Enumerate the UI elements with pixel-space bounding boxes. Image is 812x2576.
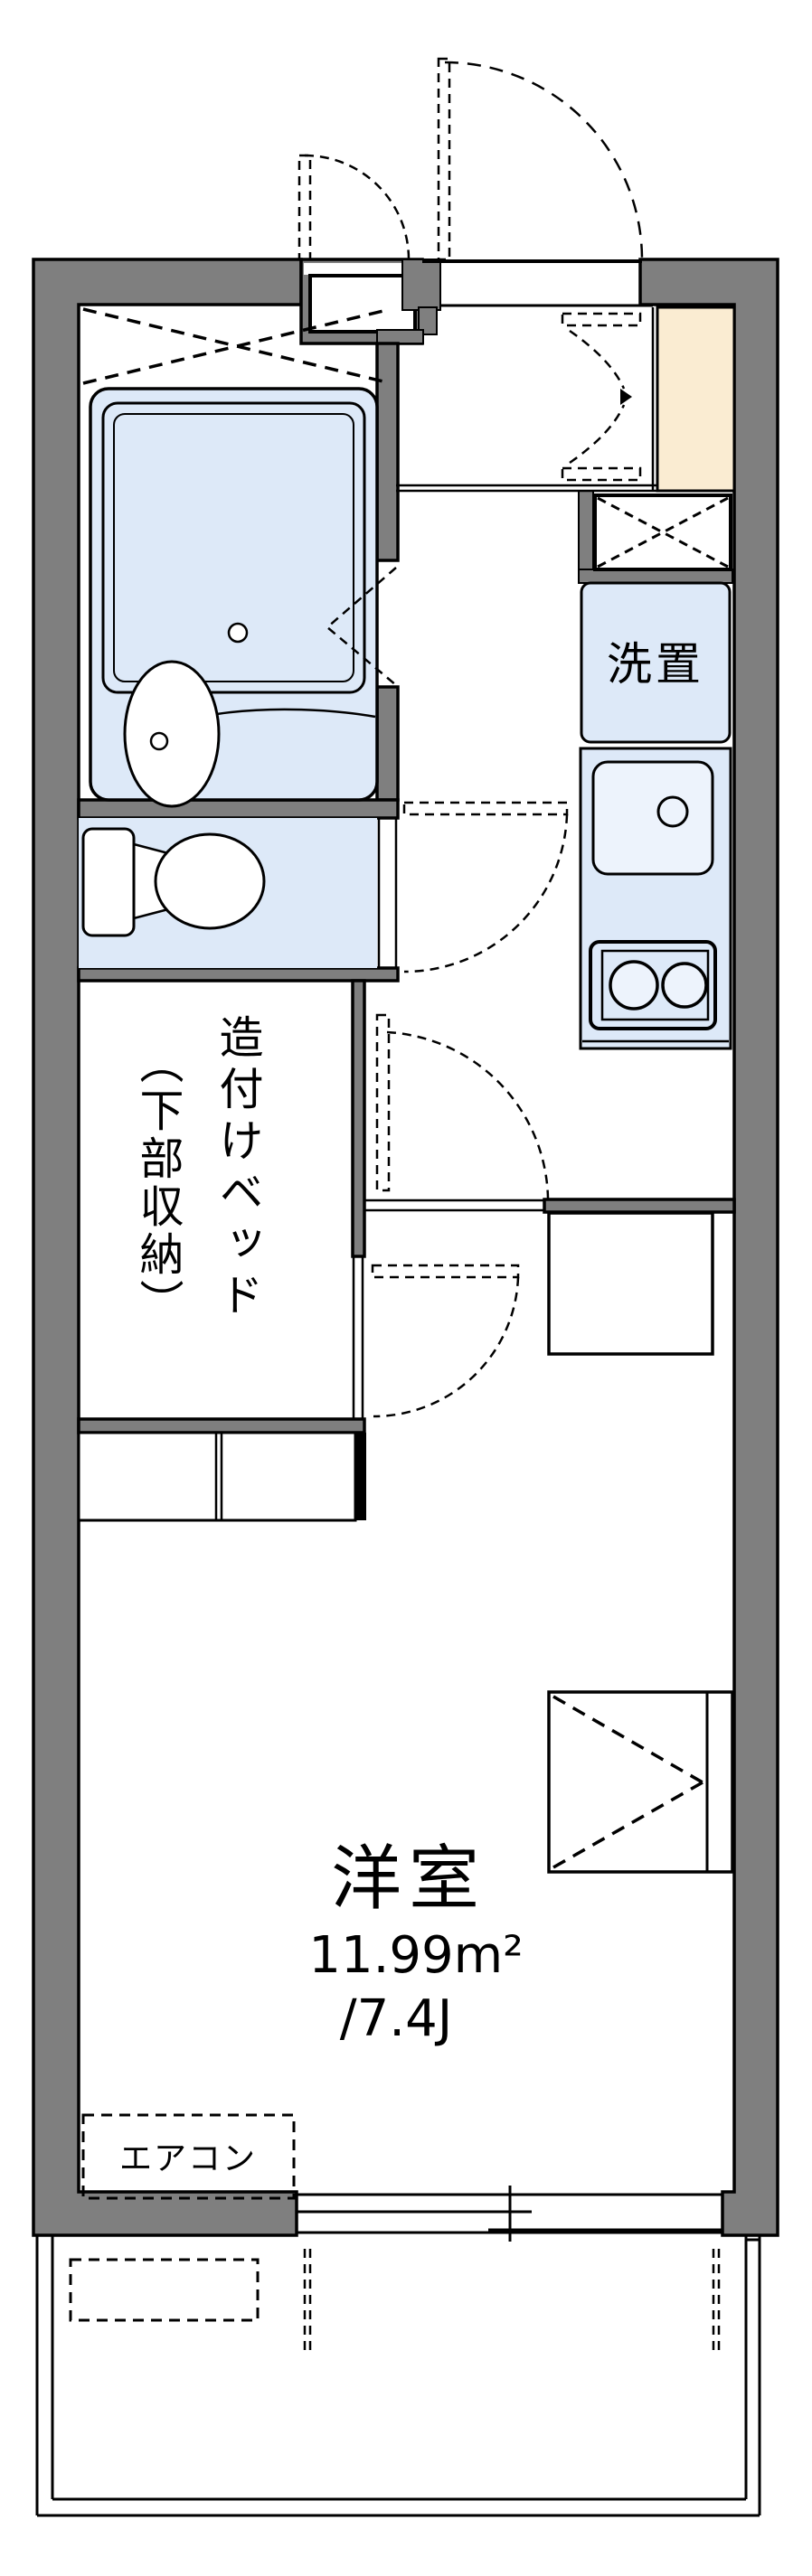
toilet-tank [83, 829, 134, 935]
hall-doors [354, 803, 567, 1419]
balcony-partition-left [305, 2249, 310, 2355]
toilet-door-leaf [404, 803, 567, 814]
stove-burner-right [663, 964, 706, 1007]
bedroom: 造付けベッド （下部収納） [79, 1014, 366, 1520]
entrance-door-leaf [439, 59, 449, 259]
bedroom-door-arc [373, 1277, 518, 1416]
hall-door-arc [387, 1032, 548, 1199]
genkan-floor [657, 307, 734, 491]
wall-bath-top-band [377, 330, 423, 343]
bathtub-drain [229, 624, 247, 642]
wall-bath-right-upper [377, 343, 398, 560]
meter-box-door-arc [305, 155, 409, 259]
bed-label-line1: 造付けベッド [212, 1014, 264, 1323]
wall-bedroom-bottom [79, 1419, 364, 1433]
wall-bath-right-lower [377, 687, 398, 800]
window-box [549, 1692, 732, 1872]
main-room-label: 洋室 [331, 1838, 486, 1920]
toilet-door-arc [404, 814, 567, 972]
wall-vestibule-jog [402, 259, 440, 310]
shoe-door-arrow [620, 389, 632, 405]
wall-bath-toilet [79, 800, 398, 818]
kitchen-sink [593, 762, 713, 874]
bed-step-end-post [355, 1433, 366, 1520]
kitchen-faucet [658, 797, 687, 826]
stove-burner-left [610, 962, 657, 1009]
wall-threshold-right [544, 1199, 734, 1212]
main-room-area-m2: 11.99m² [308, 1926, 523, 1985]
balcony-partition-right [713, 2249, 719, 2355]
toilet-room [79, 818, 396, 968]
sliding-window [297, 2186, 722, 2242]
kitchen-area: 洗置 [581, 583, 731, 1048]
balcony [37, 2235, 760, 2515]
bathroom [83, 309, 396, 806]
entrance-door-arc [445, 62, 642, 259]
aircon-label: エアコン [119, 2140, 257, 2177]
balcony-dashed-area [71, 2260, 258, 2320]
bedroom-door-leaf [373, 1265, 518, 1277]
wash-basin-drain [151, 733, 167, 749]
floorplan: 洗置 造付けベッド （下部収納） [0, 0, 812, 2576]
wall-bedroom-right [353, 981, 364, 1256]
meter-box-door-leaf [299, 155, 310, 259]
closet-box [549, 1213, 713, 1354]
wall-toilet-bottom [79, 968, 398, 981]
wall-shaft-bottom [579, 569, 732, 583]
main-room-area-tatami: /7.4J [340, 1989, 452, 2048]
main-room: 洋室 11.99m² /7.4J エアコン [83, 1213, 732, 2198]
bed-label-line2: （下部収納） [133, 1039, 184, 1327]
laundry-label: 洗置 [607, 638, 704, 691]
wash-basin [125, 662, 219, 806]
toilet-bowl [156, 834, 264, 928]
floorplan-canvas: 洗置 造付けベッド （下部収納） [0, 0, 812, 2576]
shoe-cabinet-doors [562, 314, 640, 480]
hall-door-leaf [377, 1015, 389, 1190]
